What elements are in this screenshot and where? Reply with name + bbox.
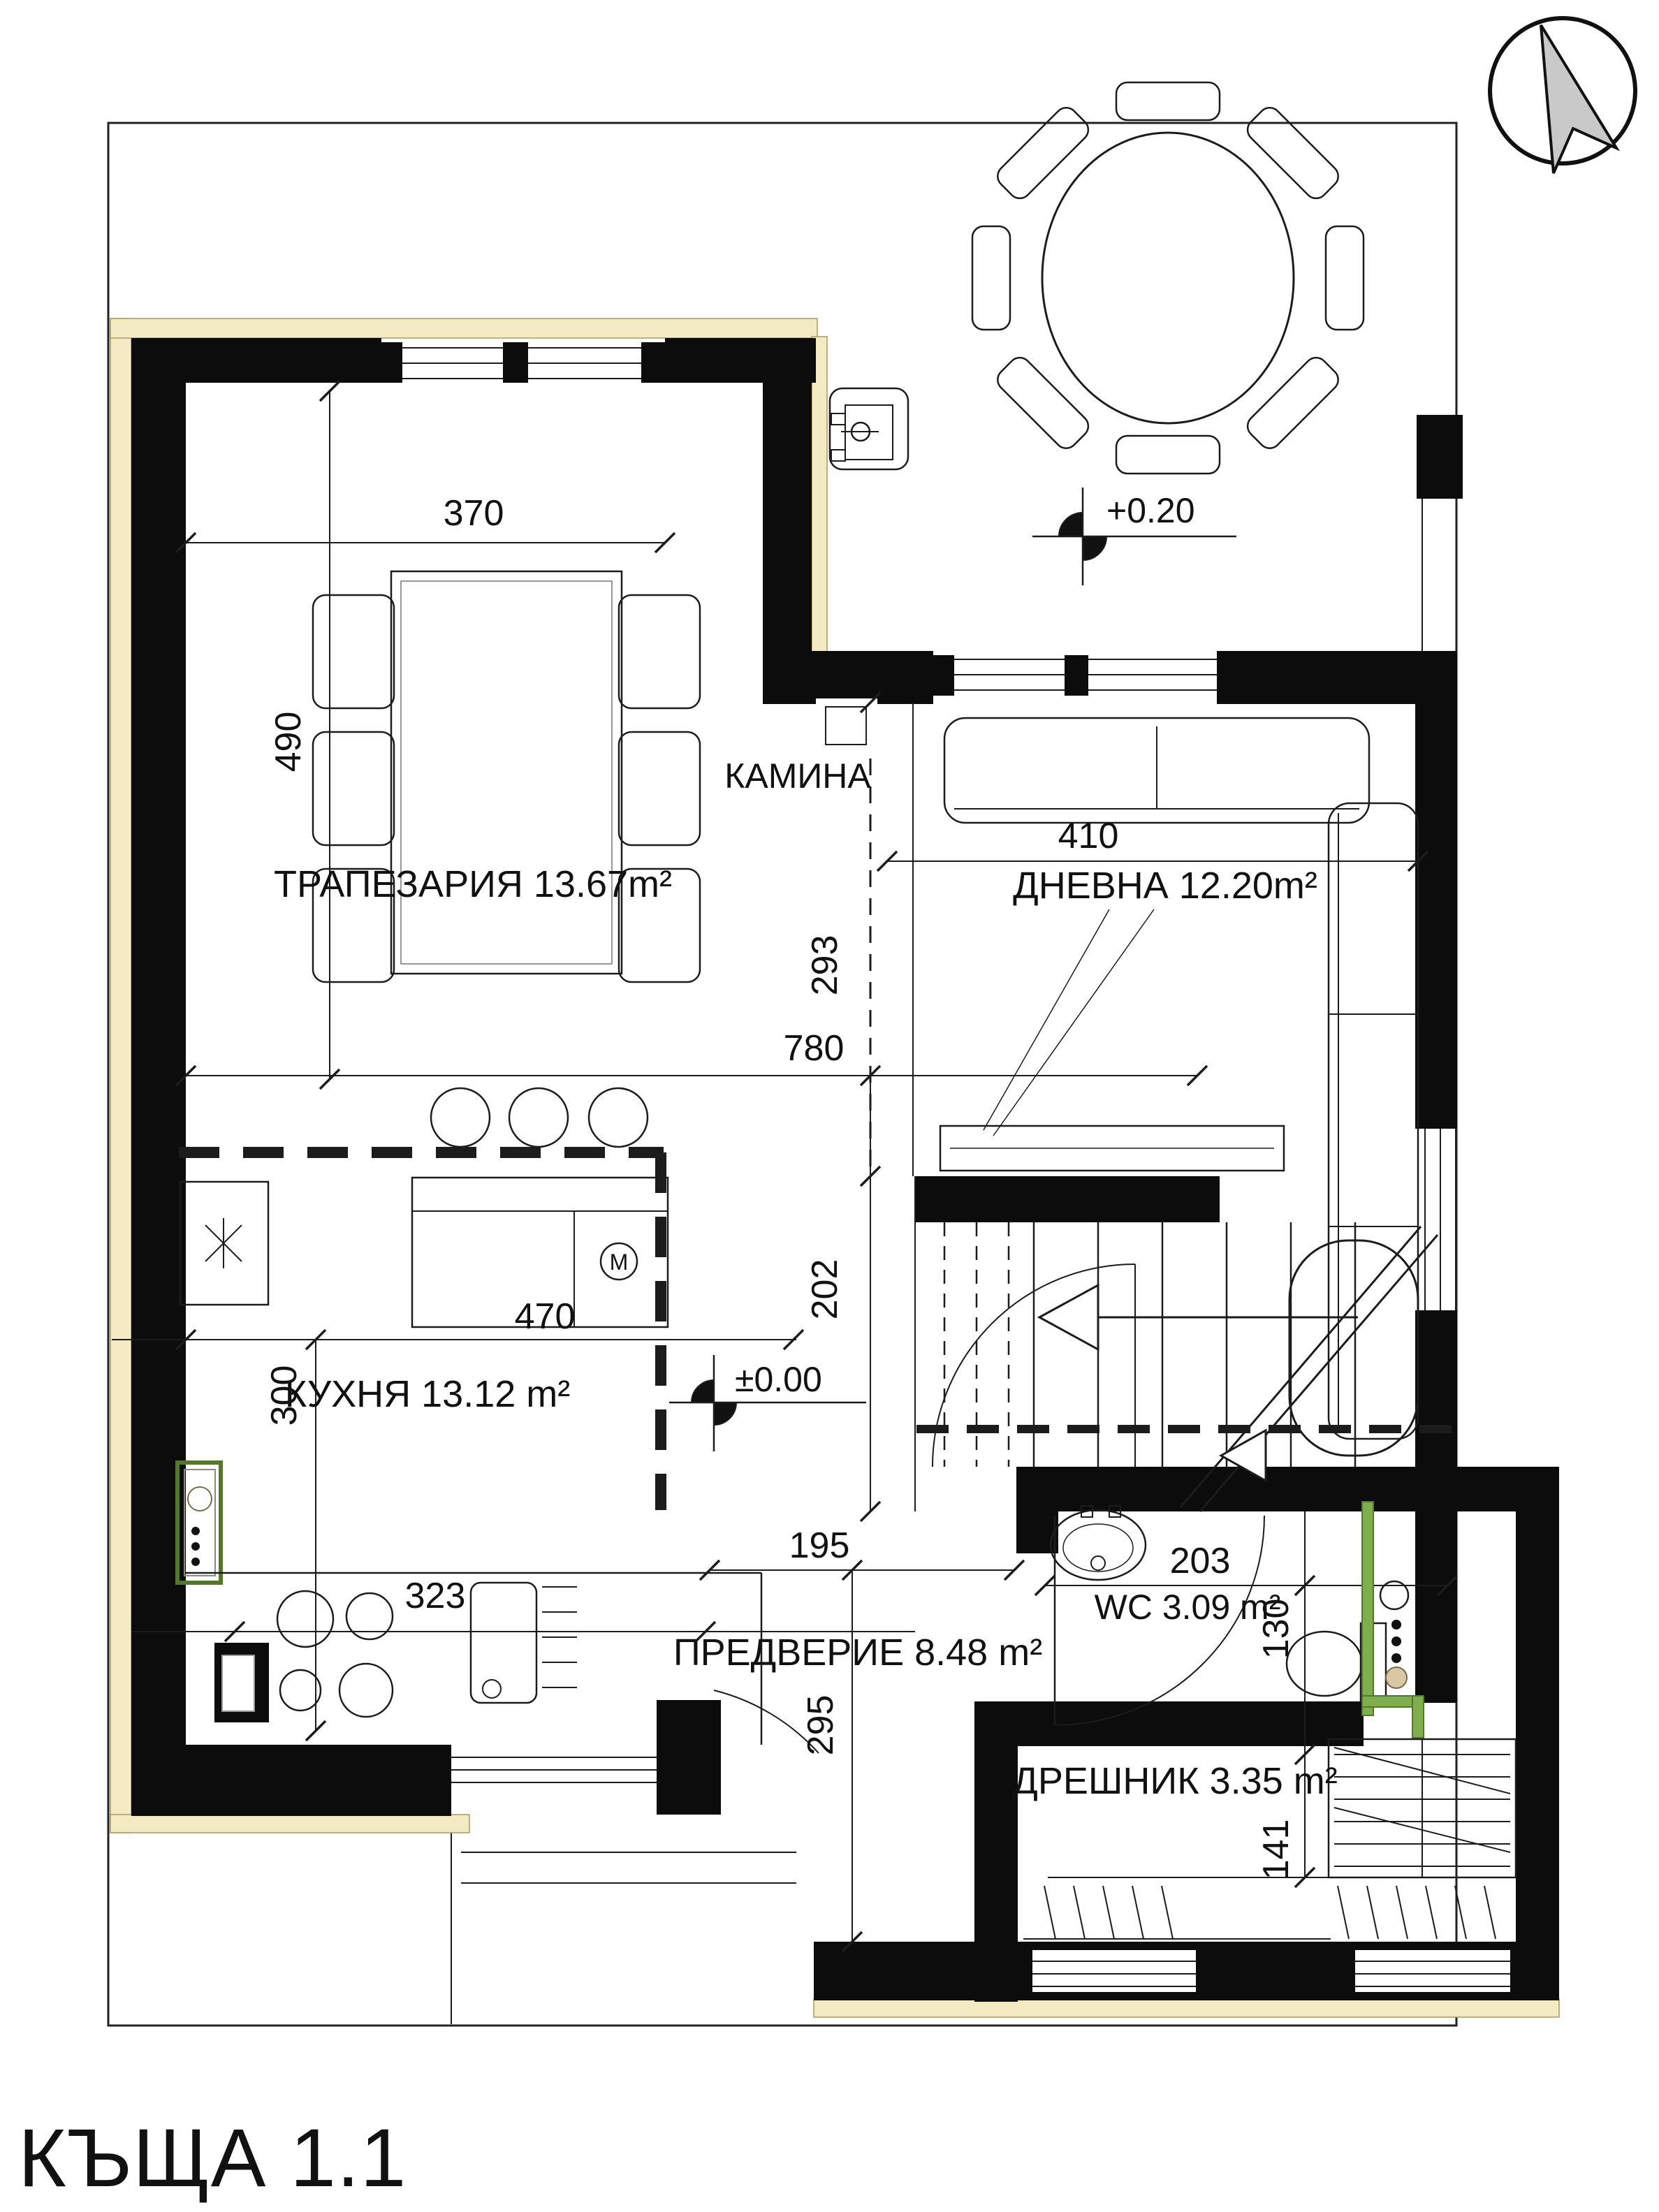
window-dining-mullion-3 [641,342,665,383]
terrace-faucet-k2 [831,450,845,461]
bar-stool-1 [431,1088,490,1147]
boiler-dot-1 [191,1527,200,1535]
dim-780: 780 [784,1028,845,1069]
boiler-dial [188,1487,212,1511]
wardrobe-bottom-hatch-a [1044,1886,1055,1939]
window-living-mullion-2 [1065,655,1088,696]
niche-bowl [1386,1667,1407,1688]
insulation-left [110,318,131,1833]
label-leader-2 [993,909,1154,1136]
dim-293: 293 [805,935,845,996]
elevation-000-label: ±0.00 [735,1360,822,1399]
wall-entry-pier [657,1700,721,1815]
terrace-chair-4 [1243,353,1343,453]
dim-203: 203 [1170,1541,1231,1581]
wall-dining-terrace [763,338,812,704]
stair-cut-1 [1181,1226,1421,1507]
dining-table-inner [401,581,612,964]
dim-370: 370 [444,493,504,534]
floor-plan-page: КЪЩА 1.1 370490410ТРАПЕЗАРИЯ 13.67m²ДНЕВ… [0,0,1659,2212]
wardrobe-bottom-hatch-b [1484,1886,1496,1939]
wardrobe-bottom-hatch-a [1103,1886,1114,1939]
wardrobe-bottom-hatch-b [1367,1886,1378,1939]
terrace-chair-3 [1326,226,1364,330]
dining-chair-1 [313,595,394,708]
label-kitchen: КУХНЯ 13.12 m² [285,1373,570,1415]
wall-right-upper [1415,703,1457,1129]
kitchen-sink-drain [483,1680,501,1698]
wc-green-wall-strip [1362,1502,1373,1715]
terrace-table [1042,133,1294,423]
sofa-right [1329,803,1418,1439]
terrace-faucet-k1 [831,413,845,425]
insulation-bottom-right [814,1999,1559,2017]
wall-wc-left-stub [1016,1511,1058,1553]
wardrobe-bottom-hatch-a [1132,1886,1143,1939]
stove-burner-3 [280,1670,321,1711]
boiler-inner [184,1470,215,1576]
niche-dot-3 [1391,1653,1401,1663]
microwave-letter: M [610,1250,629,1275]
label-fireplace: КАМИНА [724,756,871,796]
terrace-chair-2 [1243,103,1343,203]
dining-chair-4 [619,595,700,708]
niche-dot-1 [1391,1620,1401,1629]
wardrobe-bottom-hatch-b [1338,1886,1349,1939]
dim-295: 295 [801,1695,841,1756]
oven-inner [222,1655,254,1711]
wardrobe-bottom-hatch-b [1396,1886,1408,1939]
boiler-dot-2 [191,1542,200,1551]
label-living: ДНЕВНА 12.20m² [1013,865,1317,907]
stair-arrow-head [1039,1285,1098,1349]
dim-141: 141 [1256,1819,1296,1880]
window-dining-mullion-1 [381,342,402,383]
terrace-chair-5 [1116,436,1220,474]
label-leader-1 [984,909,1109,1130]
porch-column [1417,415,1463,499]
window-dining-mullion-2 [503,342,528,383]
wall-fireplace [763,651,933,704]
stair-handrail [1289,1240,1418,1456]
stove-burner-2 [346,1593,393,1639]
elevation-020-q1 [1059,513,1083,536]
wall-right-bottom [1516,1511,1559,2000]
label-wc: WC 3.09 m² [1095,1588,1281,1627]
dim-470: 470 [515,1296,576,1337]
wc-sink-dot [1091,1556,1105,1570]
wardrobe-bottom-hatch-b [1426,1886,1437,1939]
elevation-000-q2 [714,1402,736,1425]
dining-chair-5 [619,732,700,845]
dining-chair-2 [313,732,394,845]
kitchen-sink [471,1583,536,1703]
wall-top-a [131,338,381,383]
dim-323: 323 [405,1576,466,1616]
elevation-020-q2 [1083,536,1106,560]
wc-sink-inner [1063,1524,1133,1572]
window-living-mullion-1 [933,655,954,696]
label-closet: ДРЕШНИК 3.35 m² [1012,1760,1337,1802]
bar-stool-2 [509,1088,568,1147]
wardrobe-bottom-hatch-a [1074,1886,1085,1939]
terrace-chair-6 [993,353,1093,453]
terrace-chair-7 [972,226,1010,330]
elevation-000-q1 [692,1380,714,1402]
terrace-chair-8 [993,103,1093,203]
wall-closet-top [1016,1701,1364,1746]
dim-490: 490 [268,712,309,772]
boiler-dot-3 [191,1558,200,1566]
stove-burner-1 [277,1591,333,1647]
wall-stair-wc-bottom [1016,1467,1559,1511]
stove-burner-4 [339,1664,393,1717]
wall-stair-top [915,1176,1220,1222]
dim-410: 410 [1058,816,1119,856]
dim-195: 195 [789,1525,850,1566]
dining-table [391,571,622,974]
wall-terrace-bottom [1217,651,1457,704]
closet-green-corner-v [1412,1696,1424,1738]
bar-stool-3 [589,1088,648,1147]
terrace-chair-1 [1116,82,1220,120]
floor-plan-canvas: 370490410ТРАПЕЗАРИЯ 13.67m²ДНЕВНА 12.20m… [0,0,1659,2212]
dim-202: 202 [805,1259,845,1320]
insulation-top [110,318,817,338]
elevation-020-label: +0.20 [1106,491,1195,530]
wardrobe-bottom-hatch-a [1162,1886,1173,1939]
wall-left [131,338,186,1816]
wall-kitchen-bottom [131,1745,451,1816]
niche-dot-2 [1391,1636,1401,1646]
dim-130: 130 [1256,1599,1296,1660]
label-hall: ПРЕДВЕРИЕ 8.48 m² [673,1632,1042,1673]
label-dining: ТРАПЕЗАРИЯ 13.67m² [274,863,672,905]
insulation-terrace [812,337,827,703]
insulation-kitchen-bottom [110,1815,469,1833]
toilet-bowl [1287,1632,1362,1696]
